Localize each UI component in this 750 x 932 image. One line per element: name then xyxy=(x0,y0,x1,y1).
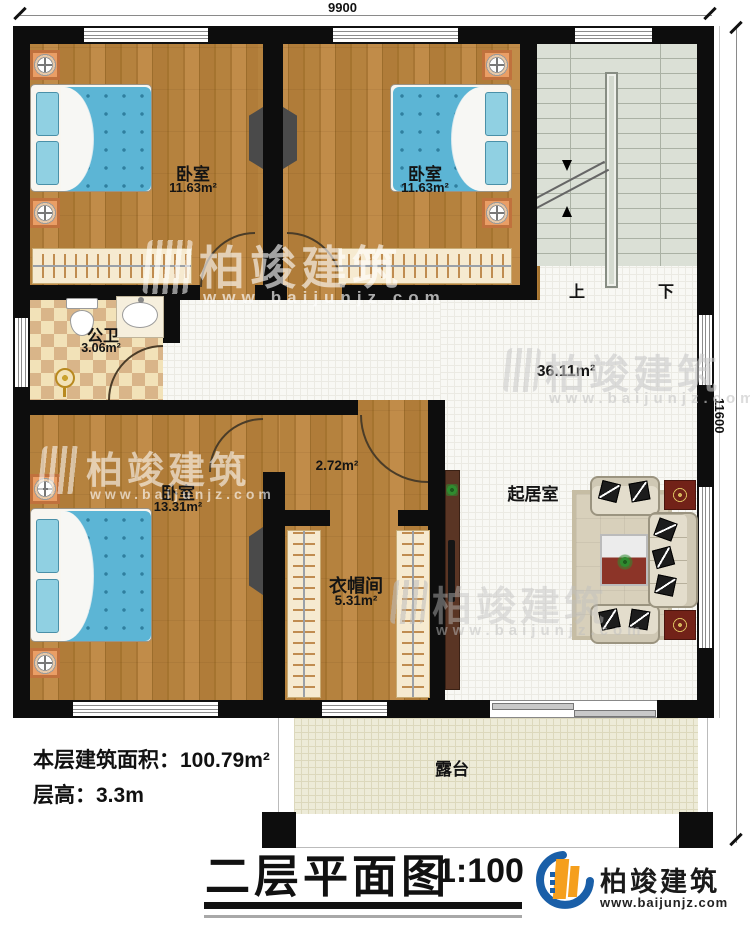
wall xyxy=(428,400,445,700)
wardrobe xyxy=(338,248,512,284)
logo-building xyxy=(568,866,580,897)
wall xyxy=(285,510,330,526)
tv-bedroom-bottom-left xyxy=(249,527,263,595)
floorplan-canvas: 卧室 11.63m² 卧室 11.63m² 公卫 3.06m² 卧室 13.31… xyxy=(0,0,750,932)
label-bedroom-bl-area: 13.31m² xyxy=(154,499,202,514)
label-hall-area: 2.72m² xyxy=(316,458,359,473)
dimension-line-right xyxy=(736,28,737,843)
label-cloakroom-area: 5.31m² xyxy=(335,593,378,608)
note-floor-area-value: 100.79m² xyxy=(180,749,270,772)
toilet-tank xyxy=(66,298,98,309)
window xyxy=(333,26,458,44)
nightstand xyxy=(482,198,512,228)
bed-pillow xyxy=(36,141,59,185)
nightstand xyxy=(482,50,512,80)
brand-logo xyxy=(533,850,595,912)
wall xyxy=(263,472,285,700)
logo-window xyxy=(550,888,555,893)
tv-bedroom-top-right xyxy=(283,107,297,169)
stair-handrail xyxy=(605,72,618,288)
wall xyxy=(697,26,714,315)
label-terrace: 露台 xyxy=(435,755,469,780)
wall xyxy=(163,300,180,343)
wall xyxy=(28,285,200,300)
floor-drain-stem xyxy=(63,388,66,397)
sofa-pillow xyxy=(598,608,621,631)
coffee-table xyxy=(600,534,648,586)
nightstand xyxy=(30,474,60,504)
title-underline-thin xyxy=(204,915,522,918)
wall xyxy=(342,285,537,300)
note-floor-height-value: 3.3m xyxy=(96,784,144,807)
wall xyxy=(218,700,322,718)
wardrobe xyxy=(32,248,192,284)
bed-pillow xyxy=(485,141,508,185)
brand-name: 柏竣建筑 xyxy=(600,860,720,899)
label-bedroom-tr-area: 11.63m² xyxy=(401,180,449,195)
sliding-door-panel xyxy=(492,703,574,710)
logo-building xyxy=(553,859,569,899)
label-bathroom-area: 3.06m² xyxy=(81,341,121,355)
bed-pillow xyxy=(485,92,508,136)
window xyxy=(322,700,387,718)
tv-living-room xyxy=(448,540,455,602)
stair-flight-divider xyxy=(660,44,661,266)
terrace-paving xyxy=(294,718,698,814)
wall xyxy=(13,400,358,415)
note-floor-height-label: 层高： xyxy=(33,784,96,807)
floor-corridor xyxy=(160,290,465,415)
wall xyxy=(13,26,30,318)
window xyxy=(697,487,714,648)
label-stairs-up: 上 xyxy=(569,278,585,302)
stair-direction-arrow xyxy=(562,206,572,217)
wall xyxy=(520,44,537,285)
bed xyxy=(30,508,152,642)
window xyxy=(73,700,218,718)
sofa-pillow xyxy=(654,574,677,597)
wall xyxy=(263,44,283,285)
window xyxy=(575,26,652,44)
drawing-scale: 1:100 xyxy=(437,852,524,891)
title-underline xyxy=(204,902,522,909)
sliding-door xyxy=(490,700,657,718)
floor-drain xyxy=(55,368,75,388)
outer-boundary-line xyxy=(719,26,720,718)
logo-window xyxy=(550,872,555,877)
drawing-title: 二层平面图 xyxy=(205,840,450,905)
sink-faucet xyxy=(138,297,144,303)
window xyxy=(697,315,714,385)
dimension-right-value: 11600 xyxy=(712,398,727,433)
plant xyxy=(446,484,458,496)
note-floor-area: 本层建筑面积：100.79m² xyxy=(33,744,270,774)
note-floor-height: 层高：3.3m xyxy=(33,779,144,809)
bed-pillow xyxy=(36,579,59,633)
window xyxy=(13,318,30,387)
wall xyxy=(458,26,575,44)
nightstand xyxy=(30,50,60,80)
wall xyxy=(398,510,430,526)
dimension-line-top xyxy=(20,15,712,16)
wall xyxy=(208,26,333,44)
label-stairs-down: 下 xyxy=(658,278,674,302)
dimension-top-value: 9900 xyxy=(328,0,357,15)
sofa-pillow xyxy=(628,480,650,502)
side-table xyxy=(664,610,696,640)
brand-url: www.baijunjz.com xyxy=(600,895,728,910)
sink-basin xyxy=(122,302,158,328)
terrace-post xyxy=(679,812,713,848)
sofa-pillow xyxy=(629,609,651,631)
bed xyxy=(30,84,152,192)
brand-logo-icon xyxy=(533,850,595,912)
label-living-area: 36.11m² xyxy=(537,363,596,381)
stair-flight-divider xyxy=(570,44,571,266)
wall xyxy=(387,700,490,718)
dimension-tick xyxy=(703,7,716,20)
tv-bedroom-top-left xyxy=(249,107,263,169)
nightstand xyxy=(30,198,60,228)
dimension-tick xyxy=(13,7,26,20)
wall xyxy=(255,285,287,300)
nightstand xyxy=(30,648,60,678)
label-bedroom-tl-area: 11.63m² xyxy=(169,180,217,195)
note-floor-area-label: 本层建筑面积： xyxy=(33,749,180,772)
wardrobe xyxy=(287,530,321,698)
wardrobe xyxy=(396,530,430,698)
stair-direction-arrow xyxy=(562,160,572,171)
bed-pillow xyxy=(36,92,59,136)
label-living-name: 起居室 xyxy=(508,480,559,505)
wall xyxy=(13,387,30,718)
logo-window xyxy=(550,880,555,885)
wall xyxy=(657,700,714,718)
wall xyxy=(428,400,445,415)
wall xyxy=(13,700,73,718)
window xyxy=(84,26,208,44)
side-table xyxy=(664,480,696,510)
sliding-door-panel xyxy=(574,710,656,717)
bed-pillow xyxy=(36,519,59,573)
plant xyxy=(617,554,633,570)
